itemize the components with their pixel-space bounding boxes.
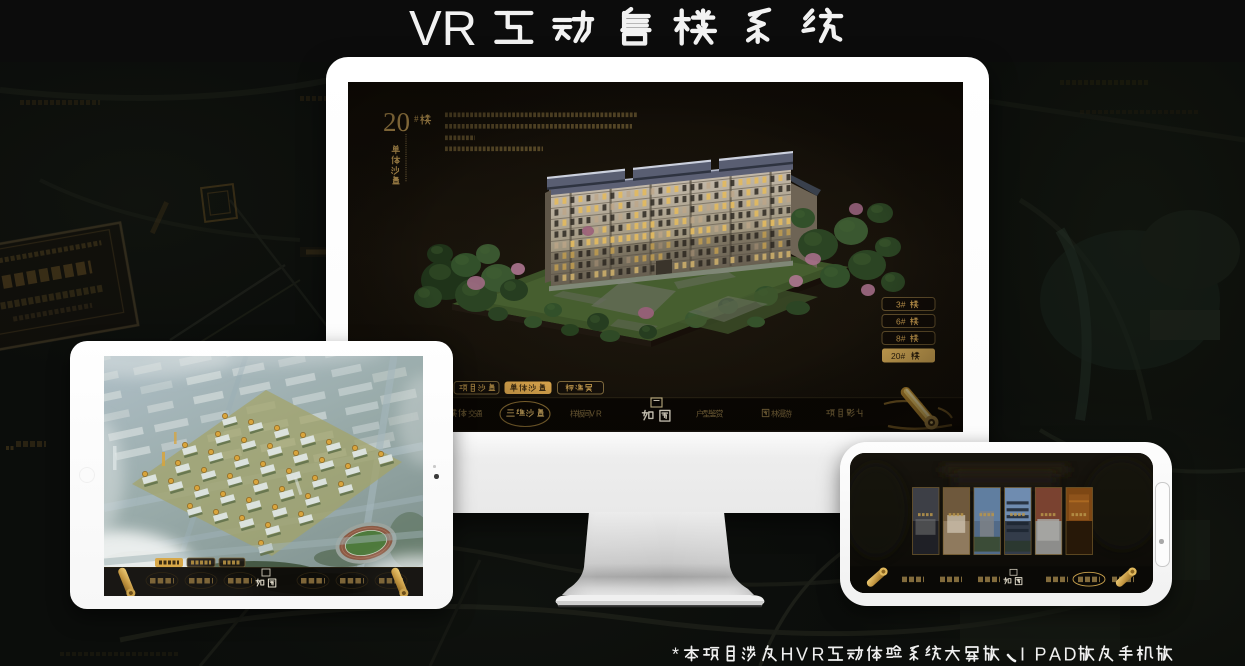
- svg-text:D: D: [1064, 644, 1077, 664]
- svg-text:*: *: [672, 644, 679, 664]
- svg-text:H: H: [781, 644, 794, 664]
- svg-text:A: A: [1049, 644, 1061, 664]
- svg-text:R: R: [812, 644, 825, 664]
- svg-text:V: V: [796, 644, 808, 664]
- svg-text:P: P: [1035, 644, 1047, 664]
- svg-text:I: I: [1020, 644, 1025, 664]
